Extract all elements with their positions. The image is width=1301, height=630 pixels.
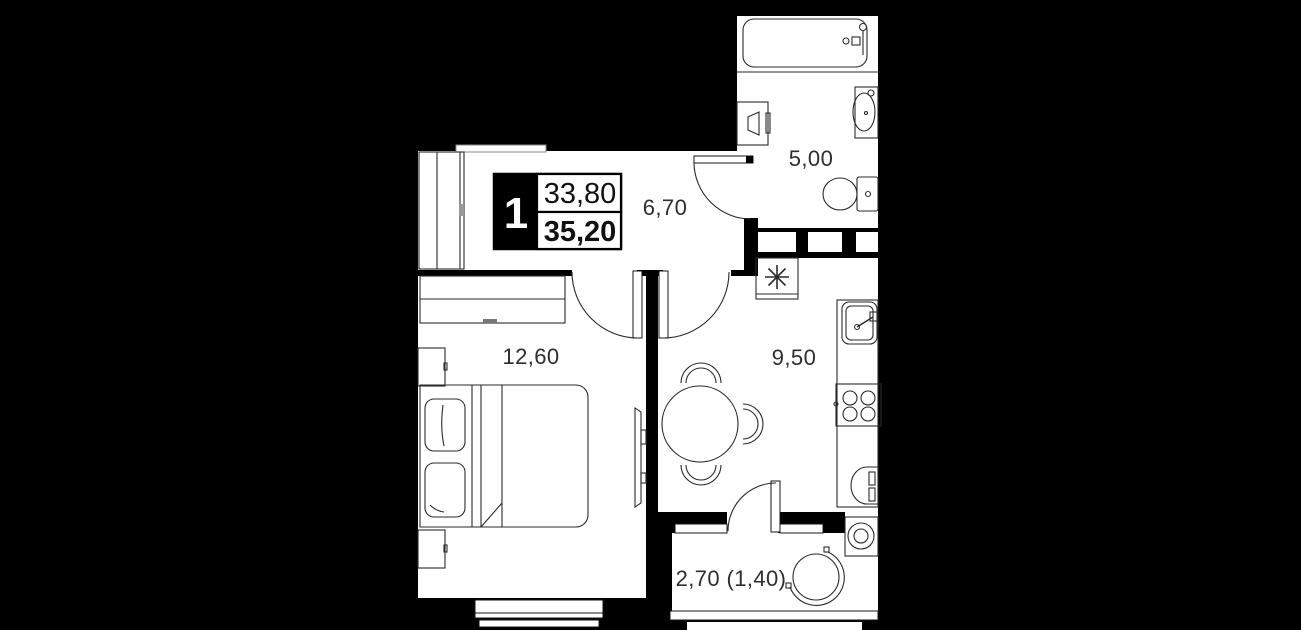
room-floors <box>418 16 878 613</box>
bedroom-area-label: 12,60 <box>502 344 559 369</box>
kitchen-floor-top <box>758 258 878 276</box>
total-area-value: 35,20 <box>544 216 617 248</box>
bedroom-window <box>475 600 603 627</box>
vent-shaft-cell <box>808 232 842 252</box>
entrance-door <box>456 145 546 152</box>
rooms-count-badge: 1 <box>504 189 528 238</box>
bedroom-floor <box>418 276 646 598</box>
bedroom-doorway-floor <box>572 265 637 276</box>
vent-shaft <box>758 232 878 252</box>
balcony-doorway-floor <box>727 512 778 533</box>
bathroom-area-label: 5,00 <box>789 146 833 171</box>
living-area-value: 33,80 <box>544 178 617 210</box>
kitchen-area-label: 9,50 <box>772 345 816 370</box>
floor-plan-canvas: 1 33,80 35,20 <box>0 0 1301 630</box>
balcony-area-label: 2,70 (1,40) <box>676 566 787 591</box>
window-sill <box>479 620 599 627</box>
kitchen-doorway-floor <box>663 265 731 276</box>
asterisk-icon <box>765 265 789 289</box>
balcony-railing <box>670 611 878 630</box>
vent-shaft-cell <box>856 232 878 252</box>
floor-plan: 1 33,80 35,20 <box>0 0 1301 630</box>
vent-shaft-cell <box>758 232 796 252</box>
info-block: 1 33,80 35,20 <box>494 174 621 249</box>
hallway-area-label: 6,70 <box>643 195 687 220</box>
